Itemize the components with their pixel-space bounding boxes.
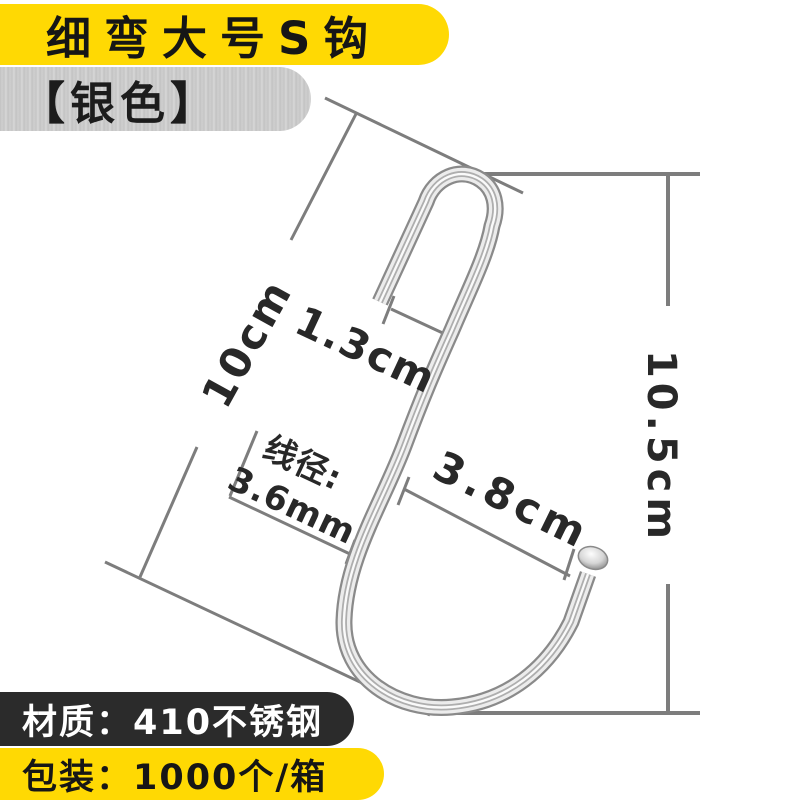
label-length: 10cm [192,270,302,415]
label-opening-width: 3.8cm [426,441,599,559]
packaging-banner: 包装：1000个/箱 [0,748,384,800]
dim-line-13cm [391,309,447,335]
hook-outline [344,174,588,707]
product-image: 10cm 1.3cm 3.8cm 线径: 3.6mm 10.5cm 细弯大号S钩… [0,0,800,800]
dim-line-10cm-lower [140,447,197,577]
material-banner: 材质：410不锈钢 [0,692,354,746]
label-total-height: 10.5cm [638,350,684,544]
title-banner: 细弯大号S钩 [0,4,449,65]
hook-core-reflection [344,174,588,707]
label-top-width: 1.3cm [288,297,444,404]
hook-body [344,174,588,707]
dim-line-10cm-upper [291,112,357,240]
color-variant-banner: 【银色】 [0,67,311,131]
s-hook-photo [344,174,611,707]
extension-line-top [325,98,523,193]
hook-highlight [344,174,588,707]
